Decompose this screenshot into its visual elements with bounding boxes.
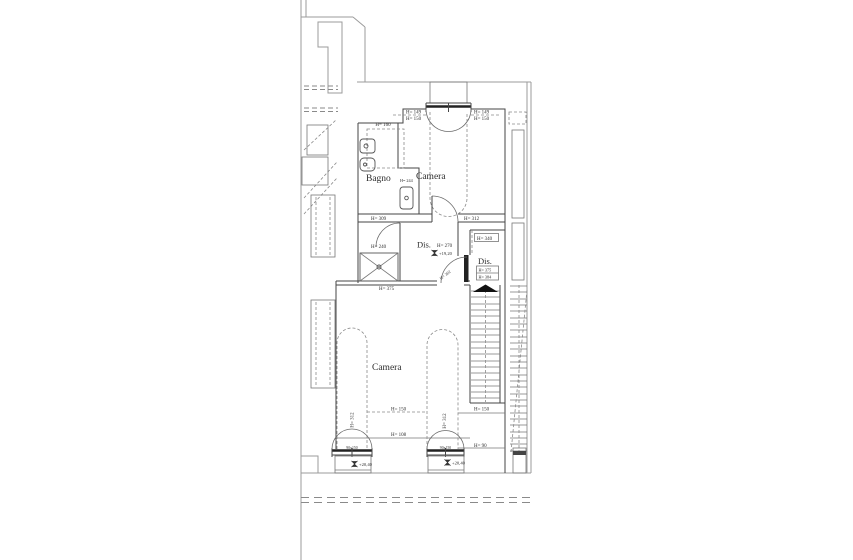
elevation-label-1920: +19,20 bbox=[439, 251, 453, 257]
door-leaf-dis bbox=[464, 255, 469, 282]
benchmark-icon bbox=[444, 459, 450, 465]
floor-plan-drawing: H= 160 H= 149 H= 150 H= 149 H= 150 Bagno… bbox=[0, 0, 853, 560]
upper-window bbox=[426, 82, 471, 132]
labels: H= 160 H= 149 H= 150 H= 149 H= 150 Bagno… bbox=[346, 111, 492, 469]
height-label-149-right: H= 149 bbox=[474, 111, 490, 116]
door-arc-camera-upper bbox=[432, 196, 458, 222]
sink-fixture bbox=[400, 187, 413, 209]
property-line-dashed bbox=[301, 498, 534, 503]
stair-direction-arrow bbox=[473, 285, 498, 293]
right-neighbor-staircase bbox=[509, 112, 527, 473]
window-size-label-right: 90x150 bbox=[440, 446, 451, 450]
room-label-camera-lower: Camera bbox=[372, 363, 402, 373]
shower-fixture bbox=[360, 253, 398, 281]
room-label-camera-upper: Camera bbox=[416, 172, 446, 182]
height-label-150-right: H= 150 bbox=[474, 117, 490, 122]
room-label-dis-main: Dis. bbox=[417, 240, 431, 250]
height-label-375-camera: H= 375 bbox=[379, 287, 395, 292]
room-label-bagno: Bagno bbox=[366, 174, 391, 184]
bidet-detail bbox=[364, 163, 367, 166]
toilet-fixture bbox=[360, 139, 375, 153]
height-label-150-right-low: H= 150 bbox=[474, 408, 490, 413]
height-label-312-lower-left: H= 312 bbox=[351, 412, 356, 428]
height-label-150-left: H= 150 bbox=[406, 117, 422, 122]
benchmark-icon bbox=[351, 461, 357, 467]
height-label-244: H= 244 bbox=[400, 178, 414, 183]
door-arc-bagno bbox=[376, 223, 400, 247]
floor-plan-page: H= 160 H= 149 H= 150 H= 149 H= 150 Bagno… bbox=[0, 0, 853, 560]
left-neighbor-structures bbox=[302, 86, 338, 388]
height-label-375-stairs: H= 375 bbox=[479, 268, 492, 273]
height-label-309: H= 309 bbox=[371, 217, 387, 222]
elevation-label-2040-right: +20,40 bbox=[452, 461, 466, 467]
height-label-340: H= 340 bbox=[477, 237, 493, 242]
height-label-bagno-160: H= 160 bbox=[375, 123, 391, 128]
bidet-fixture bbox=[360, 158, 375, 171]
height-label-384: H= 384 bbox=[479, 275, 493, 280]
window-size-label-left: 90x150 bbox=[346, 446, 357, 450]
height-label-108: H= 108 bbox=[391, 433, 407, 438]
height-label-270: H= 270 bbox=[437, 244, 453, 249]
ceiling-contours-lower bbox=[337, 328, 458, 449]
internal-staircase bbox=[471, 285, 500, 403]
benchmark-icon bbox=[431, 250, 437, 256]
height-label-240: H= 240 bbox=[371, 245, 387, 250]
room-label-dis-stairs: Dis. bbox=[478, 256, 492, 266]
height-label-150-mid: H= 150 bbox=[391, 408, 407, 413]
height-label-149-left: H= 149 bbox=[406, 111, 422, 116]
height-label-312-upper: H= 312 bbox=[464, 217, 480, 222]
bagno-fixtures bbox=[360, 139, 413, 281]
sink-detail bbox=[405, 196, 409, 200]
elevation-label-2040-left: +20,40 bbox=[359, 462, 373, 468]
height-label-90: H= 90 bbox=[474, 444, 487, 449]
height-label-312-lower-mid: H= 312 bbox=[443, 413, 448, 429]
height-label-302-door: H= 302 bbox=[439, 269, 452, 281]
door-arc-dis bbox=[441, 257, 467, 283]
